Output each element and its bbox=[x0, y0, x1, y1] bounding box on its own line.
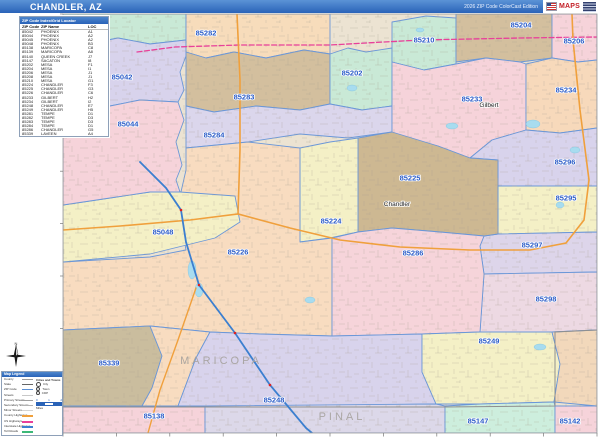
county-label-PINAL: PINAL bbox=[319, 411, 366, 423]
zip-index-rows: ZIP CodeZIP NameLOC85042PHOENIXA185044PH… bbox=[20, 24, 108, 136]
logo-text: MAPS bbox=[559, 3, 580, 10]
legend-swatch bbox=[22, 426, 33, 428]
zip-label-85206: 85206 bbox=[564, 37, 585, 46]
zip-index-row: 85339LAVEENA4 bbox=[20, 132, 108, 136]
legend-swatch bbox=[22, 410, 33, 411]
water-body bbox=[534, 344, 546, 350]
legend-swatch bbox=[22, 405, 33, 406]
zip-label-85248: 85248 bbox=[264, 396, 285, 405]
legend-swatch bbox=[22, 379, 33, 380]
legend-swatch bbox=[22, 421, 33, 423]
edition-label: 2026 ZIP Code ColorCast Edition bbox=[464, 4, 538, 10]
zip-label-85286: 85286 bbox=[403, 249, 424, 258]
water-body bbox=[416, 28, 424, 32]
zip-label-85224: 85224 bbox=[321, 217, 343, 226]
zip-label-85283: 85283 bbox=[234, 93, 255, 102]
city-symbol-icon bbox=[36, 391, 40, 395]
legend-cities-title: Cities and Towns bbox=[36, 378, 63, 382]
zip-label-85210: 85210 bbox=[414, 36, 435, 45]
zip-index-table: ZIP Code Index/Grid Locator ZIP CodeZIP … bbox=[19, 16, 109, 137]
zip-index-title: ZIP Code Index/Grid Locator bbox=[20, 17, 108, 24]
zip-label-85234: 85234 bbox=[556, 86, 578, 95]
zip-label-85142: 85142 bbox=[560, 417, 581, 426]
legend-item-toll-roads: Toll Roads bbox=[2, 429, 62, 434]
scale-unit-label: Miles bbox=[36, 406, 63, 410]
zip-label-85298: 85298 bbox=[536, 295, 557, 304]
compass-rose: N bbox=[3, 340, 29, 368]
water-body bbox=[305, 297, 315, 303]
header-bar: CHANDLER, AZ 2026 ZIP Code ColorCast Edi… bbox=[0, 0, 600, 13]
interchange-marker bbox=[269, 384, 272, 387]
legend-cities-column: Cities and Towns CityTownCDP 012 Miles bbox=[36, 378, 63, 410]
flag-icon bbox=[546, 2, 557, 11]
legend-city-classes: CityTownCDP bbox=[36, 382, 63, 396]
interchange-marker bbox=[180, 209, 183, 212]
legend-swatch bbox=[22, 431, 33, 433]
legend-swatch bbox=[22, 395, 33, 396]
zip-label-85042: 85042 bbox=[112, 73, 133, 82]
zip-label-85233: 85233 bbox=[462, 95, 483, 104]
zip-label-85225: 85225 bbox=[400, 174, 421, 183]
water-body bbox=[556, 202, 564, 208]
zip-label-85297: 85297 bbox=[522, 241, 543, 250]
zip-label-85138: 85138 bbox=[144, 412, 165, 421]
publisher-logo: MAPS bbox=[543, 0, 600, 13]
city-label-Chandler: Chandler bbox=[384, 201, 411, 208]
zip-label-85249: 85249 bbox=[479, 337, 500, 346]
water-body bbox=[526, 120, 540, 128]
zip-label-85147: 85147 bbox=[468, 417, 489, 426]
legend-swatch bbox=[22, 389, 33, 390]
zip-label-85339: 85339 bbox=[99, 359, 120, 368]
page-title: CHANDLER, AZ bbox=[30, 2, 102, 12]
zip-label-85048: 85048 bbox=[153, 228, 174, 237]
zip-label-85044: 85044 bbox=[118, 120, 140, 129]
zip-label-85295: 85295 bbox=[556, 194, 577, 203]
zip-label-85296: 85296 bbox=[555, 158, 576, 167]
water-body bbox=[446, 123, 458, 129]
legend-swatch bbox=[22, 384, 33, 385]
city-symbol-icon bbox=[36, 382, 41, 387]
zip-label-85204: 85204 bbox=[511, 21, 533, 30]
zip-label-85226: 85226 bbox=[228, 248, 249, 257]
legend-swatch bbox=[22, 400, 33, 401]
interchange-marker bbox=[234, 332, 237, 335]
legend-scale-bar: 012 Miles bbox=[36, 398, 63, 410]
water-body bbox=[570, 147, 580, 153]
county-label-MARICOPA: MARICOPA bbox=[180, 355, 262, 367]
legend-city-class: CDP bbox=[36, 391, 63, 396]
zip-label-85284: 85284 bbox=[204, 131, 226, 140]
interchange-marker bbox=[198, 284, 201, 287]
map-legend: Map Legend CountyStateZIP CodeStreetsPri… bbox=[1, 371, 63, 436]
zip-label-85202: 85202 bbox=[342, 69, 363, 78]
map-page: CHANDLER, AZ 2026 ZIP Code ColorCast Edi… bbox=[0, 0, 600, 438]
legend-swatch bbox=[22, 415, 33, 417]
logo-address-block bbox=[583, 2, 596, 12]
water-body bbox=[347, 85, 357, 91]
zip-label-85282: 85282 bbox=[196, 29, 217, 38]
